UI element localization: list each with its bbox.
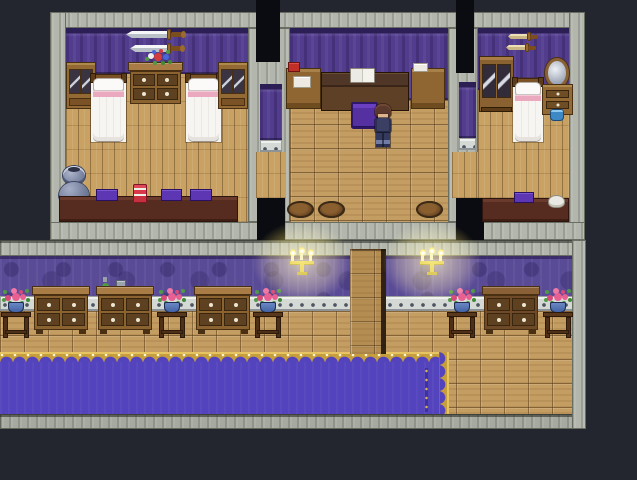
candelabra-stem [300, 263, 304, 272]
sword-pommel [180, 45, 185, 52]
bed-blanket [93, 97, 124, 141]
dresser-foot [100, 329, 107, 334]
sword-blade [130, 45, 168, 52]
dresser-top [482, 286, 540, 295]
supply-shelf[interactable] [411, 68, 445, 109]
flower-bloom [264, 293, 272, 301]
stand-bar [5, 330, 27, 334]
cabinet-base [69, 98, 93, 106]
dagger-icon [506, 43, 538, 54]
flower-stand[interactable] [253, 285, 283, 343]
hero-character[interactable] [374, 104, 392, 150]
hall-dresser[interactable] [32, 286, 90, 334]
drawer [133, 88, 155, 100]
dresser-drawers [101, 298, 149, 326]
dagger-icon [508, 32, 540, 43]
bed-blanket [188, 97, 219, 141]
dresser-top [96, 286, 154, 295]
candle [300, 253, 303, 260]
dresser-top [194, 286, 252, 295]
wash-basin[interactable] [550, 109, 564, 121]
dresser-top [32, 286, 90, 295]
stand-leg [276, 317, 281, 338]
drawer [157, 88, 179, 100]
carpet-inner-border [425, 368, 428, 412]
round-rug [287, 201, 314, 218]
dagger-blade [508, 34, 528, 39]
hallway-bottom-edge [0, 414, 586, 429]
flower-bloom [458, 293, 466, 301]
stand-leg [159, 317, 164, 338]
cabinet-base [221, 98, 245, 106]
carpet-right-trim [439, 352, 449, 414]
dresser-top [128, 62, 183, 71]
round-rug [318, 201, 345, 218]
drawer [199, 313, 222, 326]
upper-frame-bottom [50, 222, 585, 240]
stand-leg [24, 317, 29, 338]
door-to-hallway-2[interactable] [456, 198, 484, 240]
passage-2-wall [459, 82, 476, 138]
flower-stand[interactable] [447, 285, 477, 343]
stand-bar [451, 330, 473, 334]
flower-stand[interactable] [543, 285, 573, 343]
flower-bloom [12, 293, 20, 301]
red-book [288, 62, 300, 72]
supply-shelf[interactable] [286, 68, 321, 109]
drawer [101, 313, 124, 326]
wardrobe-mirror [498, 65, 510, 97]
dresser-foot [79, 329, 86, 334]
cabinet-pane [234, 70, 244, 93]
upper-frame-right [569, 12, 585, 240]
flower-dresser[interactable] [128, 62, 183, 108]
folded-cloth [549, 196, 564, 207]
candelabra-stem [430, 263, 434, 272]
dagger-grip [528, 46, 536, 50]
hall-dresser[interactable] [194, 286, 252, 334]
drawer [157, 74, 179, 86]
stand-leg [566, 317, 571, 338]
drawer [62, 298, 85, 311]
door-to-hallway-1[interactable] [257, 198, 285, 240]
void-gap-1 [256, 0, 280, 62]
dresser-foot [198, 329, 205, 334]
sword-blade [126, 31, 168, 38]
bed-pillow [516, 83, 540, 95]
stand-leg [470, 317, 475, 338]
character-legs [376, 133, 390, 147]
stand-leg [255, 317, 260, 338]
drawer [37, 313, 60, 326]
hall-dresser[interactable] [482, 286, 540, 334]
round-rug [416, 201, 443, 218]
bed-pillow [94, 79, 123, 91]
bed-pillow [189, 79, 218, 91]
bed-blanket [515, 101, 541, 141]
stand-leg [449, 317, 454, 338]
drawer [199, 298, 222, 311]
flower-bloom [168, 293, 176, 301]
dresser-drawers [199, 298, 247, 326]
vanity-drawer [546, 90, 569, 98]
stand-bar [257, 330, 279, 334]
drawer [62, 313, 85, 326]
sword-icon [126, 29, 188, 41]
game-viewport[interactable] [0, 0, 637, 480]
stand-leg [545, 317, 550, 338]
wall-candelabra-icon [289, 248, 315, 277]
drawer [126, 313, 149, 326]
drawer [133, 74, 155, 86]
wardrobe-feet [481, 107, 512, 112]
cabinet-pane [70, 70, 80, 93]
stand-leg [180, 317, 185, 338]
paper-stack [293, 76, 311, 88]
drawer [101, 298, 124, 311]
dresser-foot [241, 329, 248, 334]
bed[interactable] [91, 74, 126, 142]
hallway-right-wall [572, 240, 586, 429]
flower-stand[interactable] [157, 285, 187, 343]
wardrobe-mirror [483, 65, 495, 97]
flower-bloom [554, 293, 562, 301]
dresser-foot [36, 329, 43, 334]
void-gap-2 [456, 0, 474, 73]
drawer [37, 298, 60, 311]
passage-2-baseboard [459, 138, 476, 150]
candelabra-base [297, 272, 307, 275]
dagger-blade [506, 45, 526, 50]
passage-1-wall [260, 84, 282, 140]
paper-stack [413, 63, 428, 72]
flower-stand[interactable] [1, 285, 31, 343]
bed[interactable] [513, 78, 543, 142]
purple-book [161, 189, 182, 201]
candelabra-base [427, 272, 437, 275]
upper-frame-top [50, 12, 585, 28]
glass-cabinet[interactable] [218, 62, 248, 109]
dagger-grip [530, 35, 538, 39]
drawer [487, 298, 510, 311]
drawer [512, 313, 535, 326]
carpet [0, 362, 440, 414]
passage-2-floor[interactable] [452, 152, 478, 198]
dresser-drawers [487, 298, 535, 326]
dresser-foot [143, 329, 150, 334]
purple-book [190, 189, 212, 201]
cabinet-pane [222, 70, 232, 93]
stand-bar [161, 330, 183, 334]
passage-1-baseboard [260, 140, 282, 152]
dresser-foot [529, 329, 536, 334]
dresser-foot [486, 329, 493, 334]
drawer [487, 313, 510, 326]
flower-bouquet [154, 53, 162, 61]
dresser-drawers [133, 74, 178, 100]
stand-bar [547, 330, 569, 334]
candle [430, 253, 433, 260]
passage-1-floor[interactable] [256, 152, 286, 198]
open-book[interactable] [350, 68, 375, 83]
plant-hook [103, 277, 107, 282]
drawer [224, 313, 247, 326]
drawer [126, 298, 149, 311]
stand-leg [3, 317, 8, 338]
sword-pommel [181, 31, 186, 38]
drawer [224, 298, 247, 311]
drawer [512, 298, 535, 311]
hall-dresser[interactable] [96, 286, 154, 334]
dresser-drawers [37, 298, 85, 326]
hallway-stair-column[interactable] [350, 249, 386, 354]
vanity-drawer [546, 101, 569, 109]
purple-book [96, 189, 118, 201]
wall-candelabra-icon [419, 248, 445, 277]
purple-book [514, 192, 534, 203]
mirrored-wardrobe[interactable] [479, 56, 514, 112]
layer-cake [133, 184, 147, 203]
bed[interactable] [186, 74, 221, 142]
character-body [375, 118, 391, 133]
